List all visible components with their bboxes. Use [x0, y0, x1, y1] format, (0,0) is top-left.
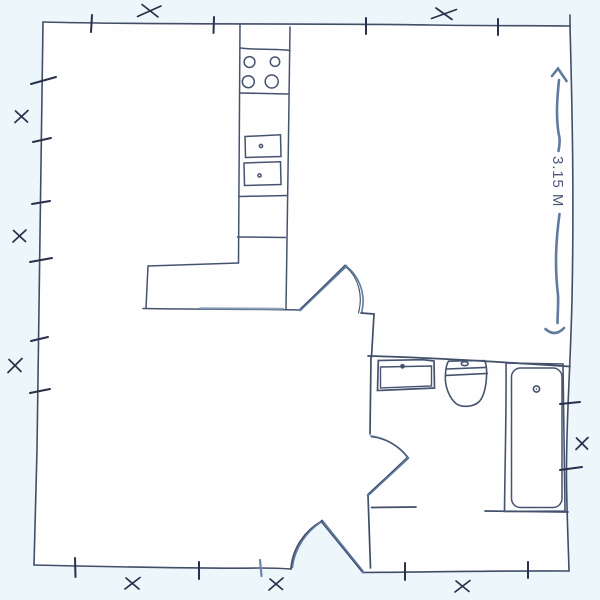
svg-text:3.15 M: 3.15 M: [549, 156, 566, 207]
